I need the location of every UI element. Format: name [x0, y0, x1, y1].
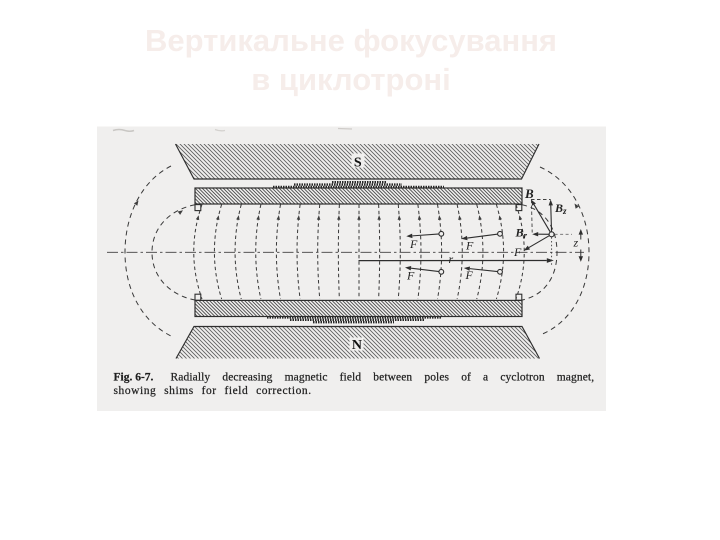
svg-text:N: N	[352, 338, 362, 353]
svg-text:F: F	[465, 268, 474, 282]
svg-text:F: F	[513, 245, 522, 259]
svg-text:Fig. 6-7. Radially decreasing: Fig. 6-7. Radially decreasing magnetic f…	[114, 372, 595, 384]
svg-text:r: r	[449, 252, 454, 266]
svg-text:F: F	[409, 237, 418, 251]
svg-text:S: S	[354, 155, 362, 170]
svg-text:z: z	[573, 236, 579, 250]
svg-text:F: F	[406, 269, 415, 283]
svg-text:B: B	[524, 186, 534, 201]
svg-text:showing shims for field correc: showing shims for field correction.	[114, 385, 312, 397]
svg-text:F: F	[465, 239, 474, 253]
